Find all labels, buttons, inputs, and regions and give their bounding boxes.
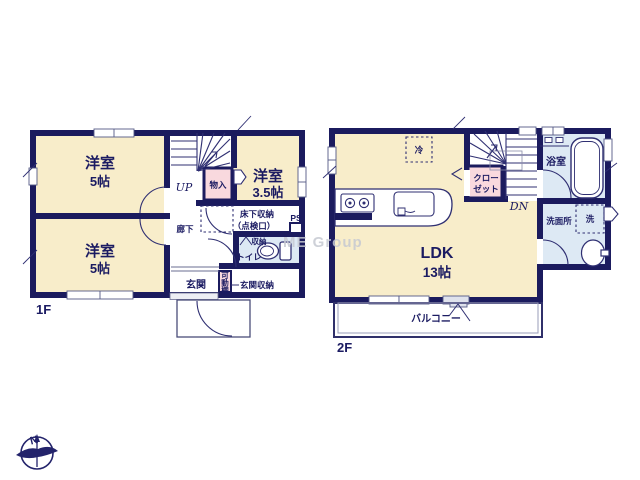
bath-door-opening [537,170,543,198]
entrance-door-opening [170,293,218,300]
sink-icon [394,192,434,216]
label-washer: 洗 [586,214,595,224]
label-movable-shelf-3: 棚 [221,285,229,295]
compass-icon: N [16,434,58,469]
label-underfloor-storage: 床下収納 [240,209,274,219]
label-bedroom-bottom-name: 洋室 [85,242,115,260]
entrance-porch [170,293,250,337]
kitchen-half-wall [335,213,372,220]
label-bathroom: 浴室 [546,155,566,168]
floor-1f: 洋室 5帖 洋室 5帖 洋室 3.5帖 物入 UP 床下収納 （点検口） PS … [23,116,306,337]
entrance-door-arc [197,301,232,336]
label-ldk-name: LDK [421,245,454,262]
closet-opening [464,170,470,196]
label-refrigerator: 冷 [415,145,424,155]
label-entrance: 玄関 [186,278,206,291]
label-bedroom-bottom-size: 5帖 [90,261,110,276]
label-dn: DN [509,200,529,213]
label-bedroom-top-name: 洋室 [85,154,115,172]
stairs-1f [171,133,230,171]
bathtub-icon [571,138,603,198]
watermark: ME Group [283,234,363,251]
washroom-door-opening [537,239,543,264]
floorplan-image: 洋室 5帖 洋室 5帖 洋室 3.5帖 物入 UP 床下収納 （点検口） PS … [0,0,640,480]
floorplan-page: 洋室 5帖 洋室 5帖 洋室 3.5帖 物入 UP 床下収納 （点検口） PS … [0,0,640,480]
label-underfloor-note: （点検口） [233,221,276,231]
pipe-space-box [290,223,302,233]
stove-icon [341,194,374,212]
label-pipe-space: PS [290,213,302,223]
label-washroom: 洗面所 [546,216,572,226]
label-bedroom-top-size: 5帖 [90,174,110,189]
label-closet-2: ゼット [473,184,499,194]
label-ldk-size: 13帖 [423,264,452,280]
label-floor1: 1F [36,302,51,317]
label-balcony: バルコニー [411,313,461,325]
label-hallway: 廊下 [176,224,194,234]
label-bedroom-right-name: 洋室 [253,167,283,185]
kitchen-counter [335,189,452,226]
label-entrance-storage: 玄関収納 [240,280,274,290]
label-monoire: 物入 [209,180,227,190]
label-toilet-shelf: 収納 [252,236,267,246]
floor-2f: LDK 13帖 冷 クロー ゼット DN 浴室 洗面所 洗 バルコニー 2F [323,117,618,355]
entry-arrow-icon [604,207,618,221]
label-floor2: 2F [337,340,352,355]
label-bedroom-right-size: 3.5帖 [252,185,283,200]
label-closet-1: クロー [473,173,499,183]
label-up: UP [176,181,193,194]
compass-north-label: N [29,434,40,448]
label-toilet: トイレ [236,252,262,262]
